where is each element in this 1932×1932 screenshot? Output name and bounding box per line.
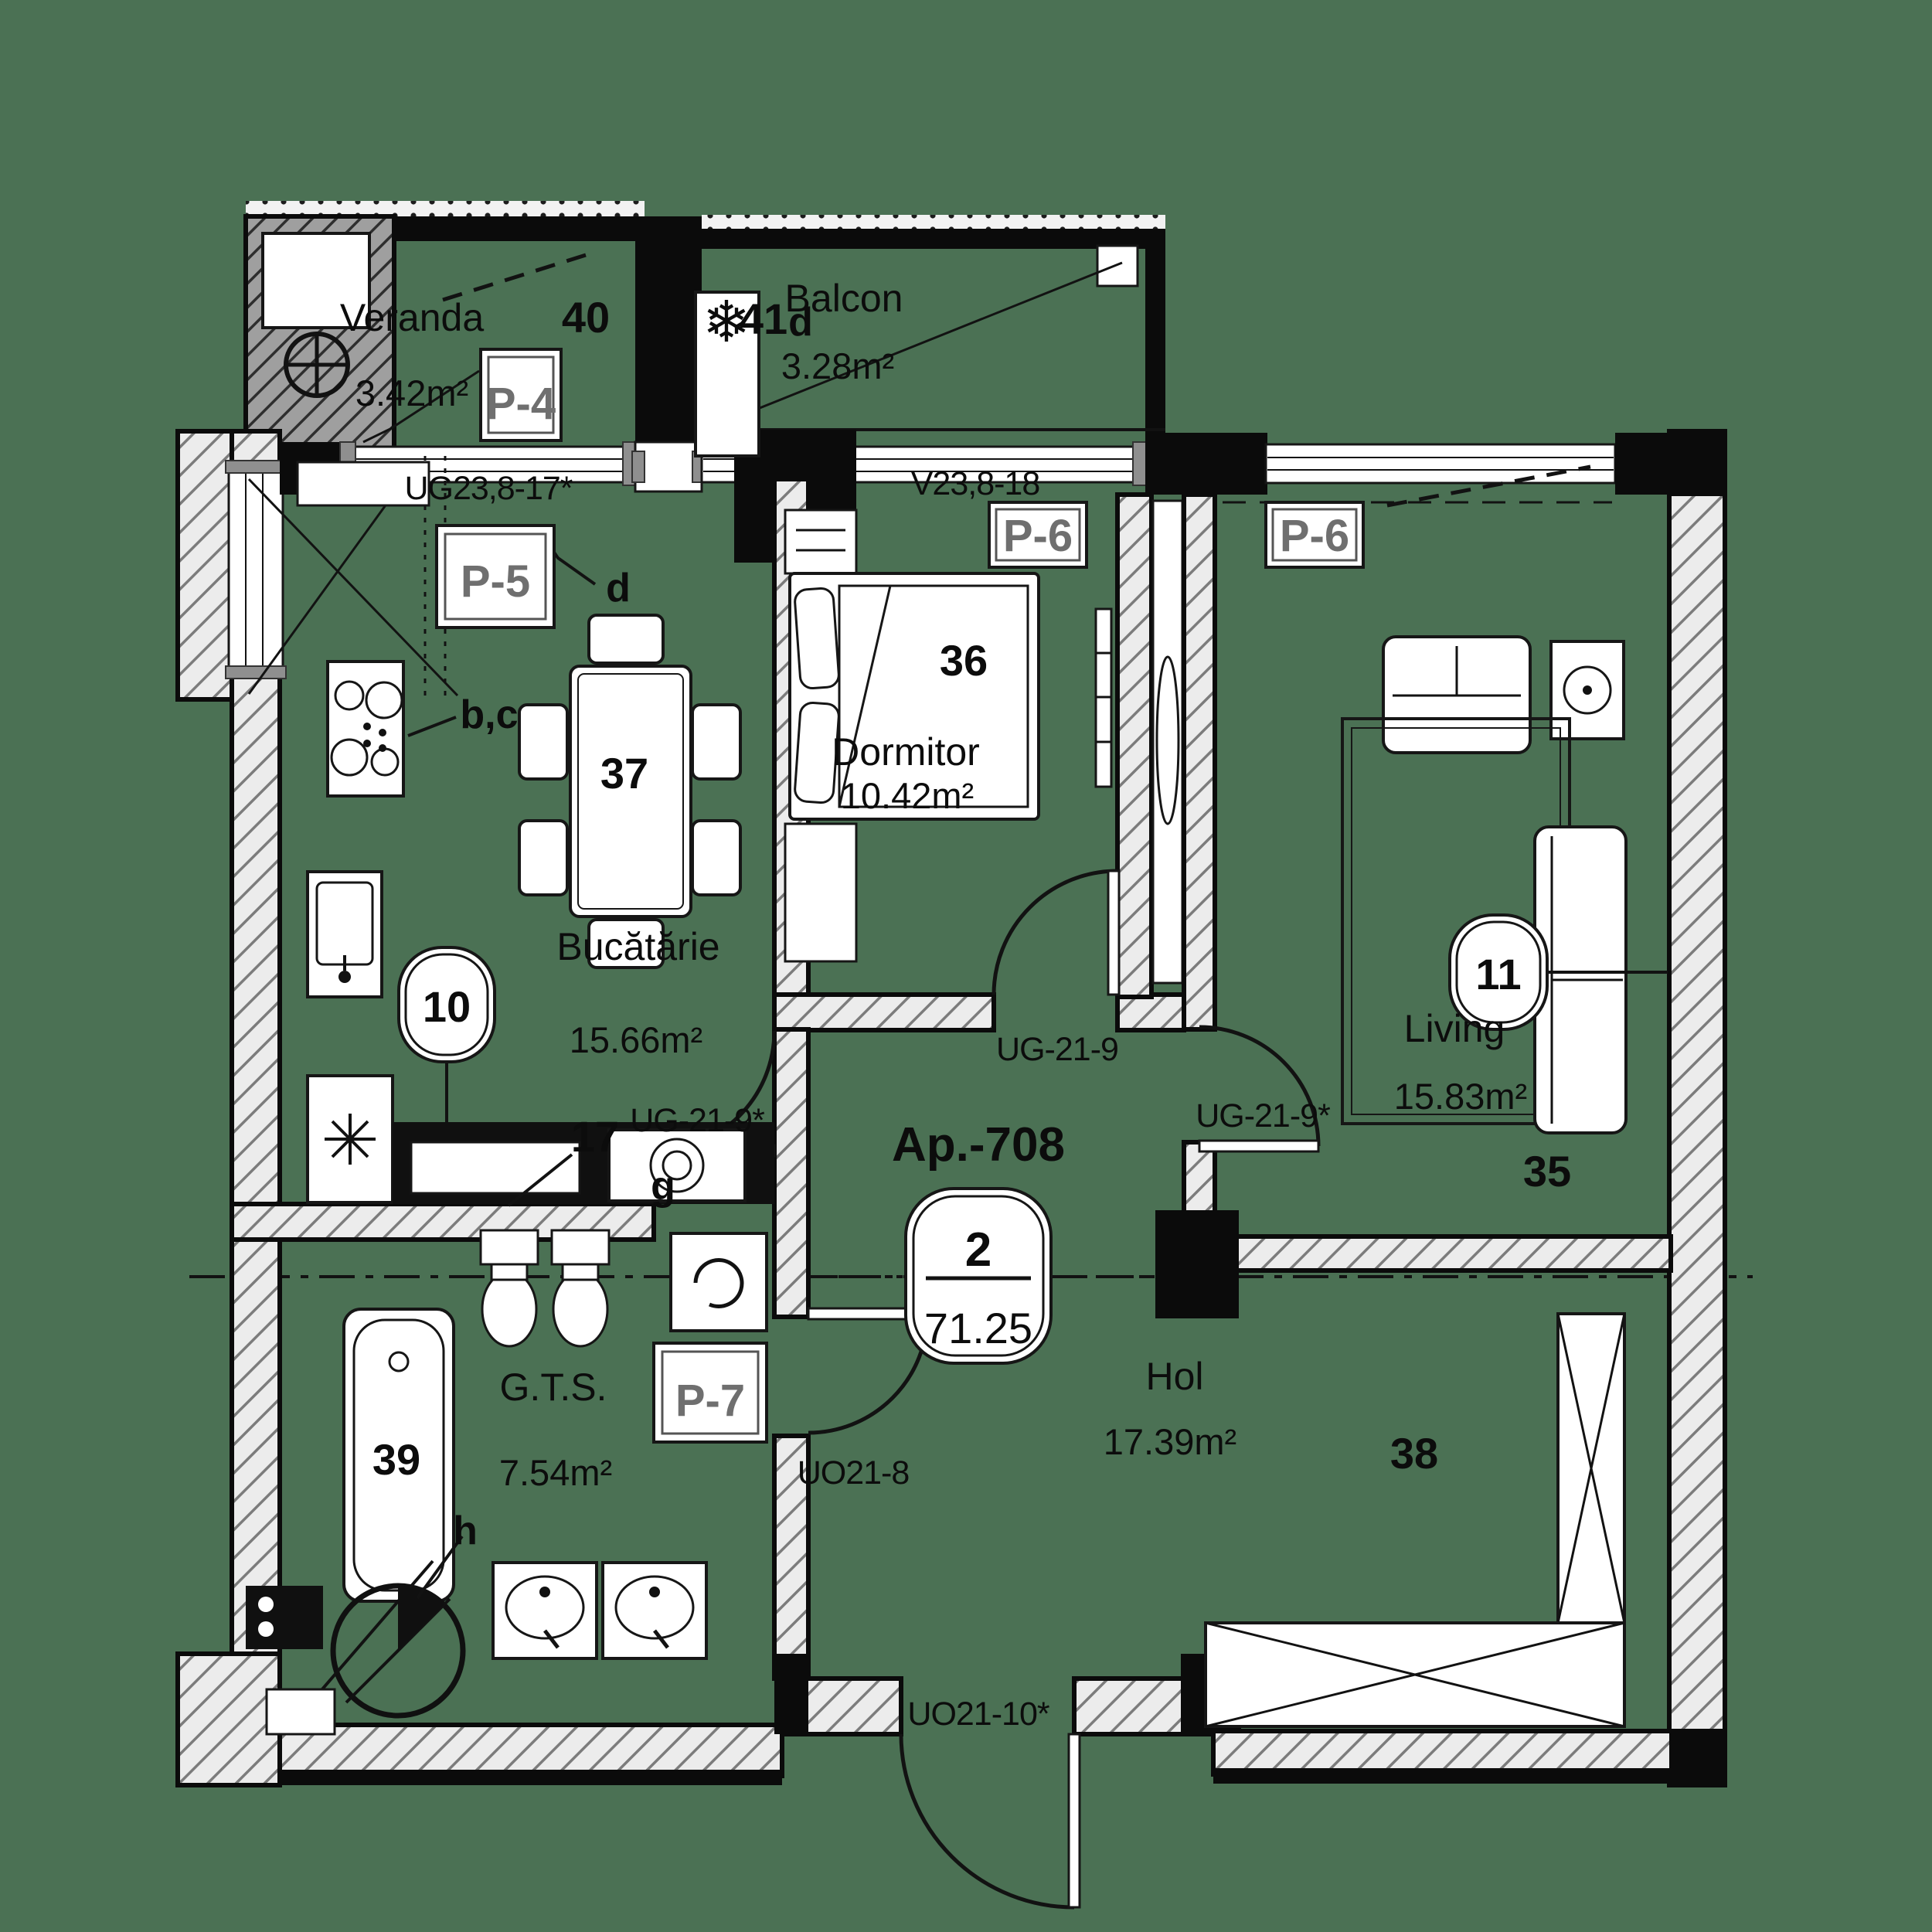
living-top-wall-left <box>1145 433 1267 495</box>
bottom-left-corner <box>178 1654 280 1785</box>
room-name-kitchen: Bucătărie <box>556 925 719 968</box>
panel-label-p5: P-5 <box>437 526 554 628</box>
panel-label-p4: P-4 <box>481 349 561 440</box>
finish-code-g: g <box>651 1164 675 1209</box>
finish-code-bc: b,c <box>460 692 518 737</box>
fridge-icon <box>308 1076 393 1202</box>
panel-label-p6-bedroom: P-6 <box>989 502 1087 567</box>
door-label-bedroom: UG-21-9 <box>996 1031 1118 1068</box>
apartment-total-area: 71.25 <box>924 1304 1032 1352</box>
floor-plan-canvas: ❄ P-4 P-5 P-6 P <box>0 0 1932 1932</box>
finish-code-balcony-d: d <box>788 300 813 345</box>
bedroom-door-leaf <box>1108 871 1119 995</box>
living-hol-pier <box>1155 1210 1239 1318</box>
room-area-kitchen: 15.66m² <box>570 1019 702 1060</box>
fixture-tag-10-text: 10 <box>423 982 471 1031</box>
toilet-icon-2 <box>552 1230 609 1346</box>
living-bottom-wall <box>1236 1236 1671 1270</box>
living-left-wall-lower <box>1184 1142 1215 1213</box>
sink-icon-2 <box>603 1563 706 1658</box>
sink-icon <box>493 1563 597 1658</box>
insulation-strip-balcony <box>702 215 1165 229</box>
door-label-bathroom: UO21-8 <box>798 1454 910 1492</box>
room-name-gts: G.T.S. <box>500 1366 607 1409</box>
door-label-living: UG-21-9* <box>1196 1097 1331 1134</box>
hol-bath-wall-upper <box>774 1029 808 1317</box>
fixture-tag-10: 10 <box>399 947 495 1062</box>
plumbing-block <box>246 1586 323 1649</box>
room-name-living: Living <box>1404 1007 1505 1050</box>
door-label-kitchen: UG-21-9* <box>630 1102 765 1139</box>
balcony-parapet-right <box>1145 229 1165 433</box>
living-left-wall <box>1184 495 1215 1029</box>
room-area-balcon: 3.28m² <box>781 345 894 386</box>
panel-label-p7-text: P-7 <box>675 1376 745 1426</box>
bedroom-right-wall <box>1117 495 1151 997</box>
room-number-veranda: 40 <box>562 293 610 342</box>
panel-label-p5-text: P-5 <box>461 556 530 607</box>
room-area-living: 15.83m² <box>1394 1076 1527 1117</box>
room-name-bedroom: Dormitor <box>832 730 980 774</box>
room-area-veranda: 3.42m² <box>355 372 468 413</box>
room-area-gts: 7.54m² <box>499 1452 612 1493</box>
balcony-parapet-top <box>702 229 1165 249</box>
panel-label-p7: P-7 <box>654 1343 767 1442</box>
room-area-hol: 17.39m² <box>1104 1421 1236 1462</box>
living-window <box>1266 444 1615 483</box>
room-number-kitchen: 37 <box>600 749 648 798</box>
entrance-door-leaf <box>1069 1734 1080 1907</box>
room-number-balcon: 41 <box>740 294 787 343</box>
apartment-id: Ap.-708 <box>892 1118 1065 1172</box>
room-name-hol: Hol <box>1145 1355 1203 1398</box>
doormat <box>267 1689 335 1734</box>
floor-plan-page: ❄ P-4 P-5 P-6 P <box>0 0 1932 1932</box>
door-label-entrance: UO21-10* <box>907 1696 1049 1733</box>
room-number-hol: 38 <box>1390 1429 1438 1478</box>
left-side-window <box>229 470 283 675</box>
window-label-balcony: V23,8-18 <box>911 465 1040 502</box>
bedroom-bottom-wall-right <box>1117 995 1184 1030</box>
room-area-bedroom: 10.42m² <box>841 775 974 816</box>
toilet-icon <box>481 1230 538 1346</box>
hol38-bottom-wall <box>1213 1731 1725 1774</box>
finish-code-kitchen-d: d <box>606 566 631 611</box>
kitchen-sink-icon <box>308 872 382 997</box>
apartment-rooms-count: 2 <box>965 1223 992 1277</box>
washing-machine-icon <box>671 1233 767 1331</box>
duct-lens <box>1157 657 1179 824</box>
room-name-veranda: Veranda <box>340 296 484 339</box>
room-number-gts: 39 <box>372 1435 420 1484</box>
veranda-balcony-divider <box>635 216 702 479</box>
panel-label-p6-living: P-6 <box>1266 502 1363 567</box>
bedroom-bottom-wall <box>774 995 994 1030</box>
apartment-stamp: Ap.-708 2 71.25 <box>892 1118 1065 1363</box>
room-number-bedroom: 36 <box>940 636 988 685</box>
panel-label-p6-bedroom-text: P-6 <box>1003 511 1073 561</box>
panel-label-p6-living-text: P-6 <box>1280 511 1349 561</box>
right-exterior-wall <box>1669 431 1725 1785</box>
finish-code-h: h <box>453 1509 478 1553</box>
fixture-tag-11-text: 11 <box>1475 950 1521 998</box>
room-number-living: 35 <box>1523 1147 1571 1196</box>
living-door-leaf <box>1199 1141 1318 1151</box>
panel-label-p4-text: P-4 <box>486 379 556 429</box>
stove-icon <box>328 662 403 796</box>
window-label-veranda: UG23,8-17* <box>404 470 573 507</box>
kitchen-extra-17: 17 <box>571 1112 619 1161</box>
